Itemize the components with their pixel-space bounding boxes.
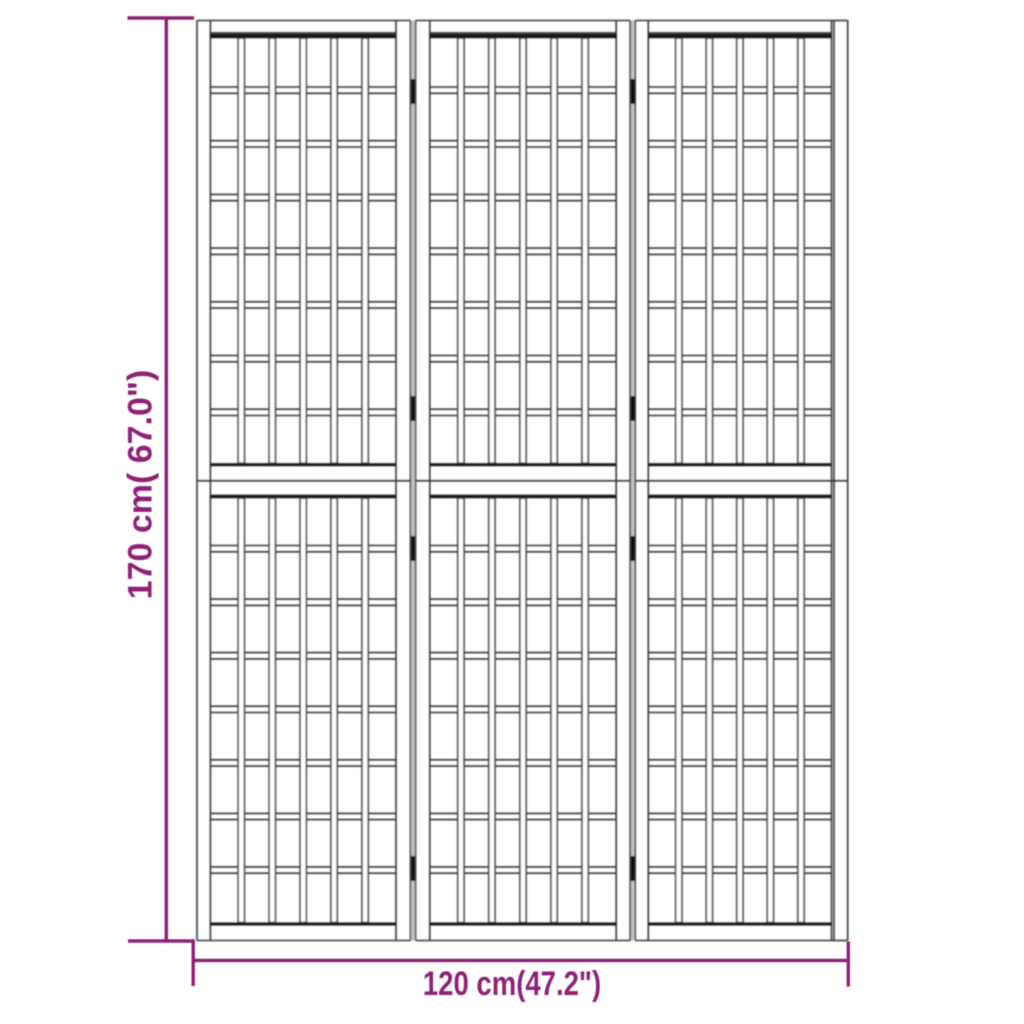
svg-text:170 cm( 67.0"): 170 cm( 67.0") xyxy=(122,370,160,600)
svg-text:120 cm(47.2"): 120 cm(47.2") xyxy=(423,964,601,1002)
